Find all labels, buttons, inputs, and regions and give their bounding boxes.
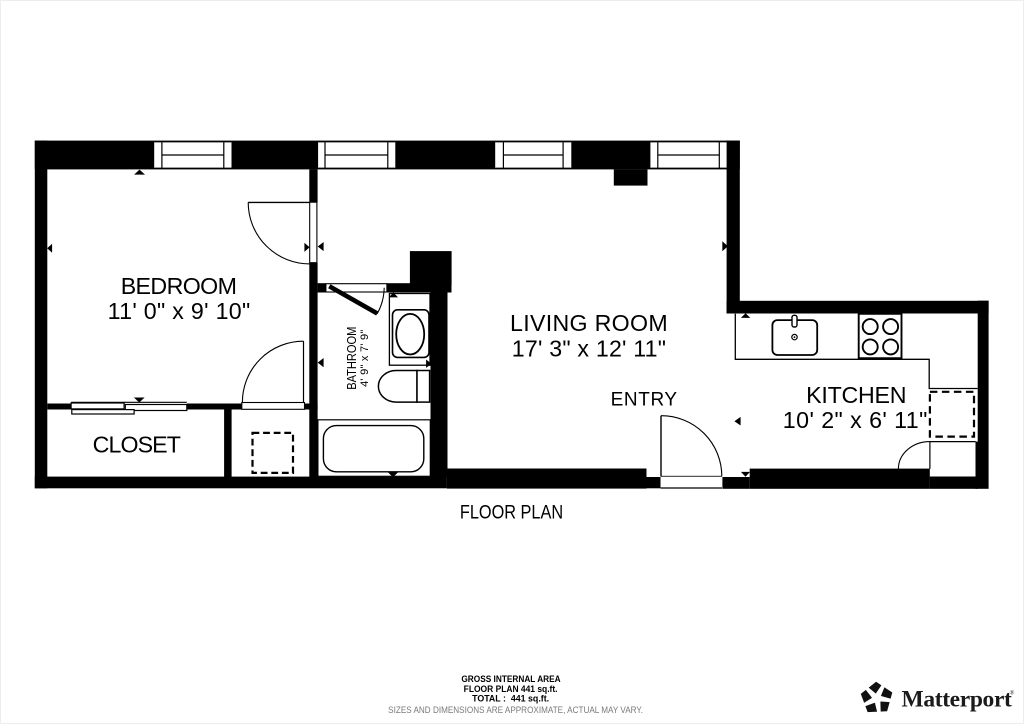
svg-text:10' 2" x 6' 11": 10' 2" x 6' 11" [783,407,928,433]
svg-text:CLOSET: CLOSET [93,432,181,458]
svg-text:BEDROOM: BEDROOM [121,273,237,299]
svg-text:KITCHEN: KITCHEN [806,382,906,408]
svg-text:FLOOR PLAN: FLOOR PLAN [460,501,563,523]
svg-text:SIZES AND DIMENSIONS ARE APPRO: SIZES AND DIMENSIONS ARE APPROXIMATE, AC… [388,704,643,715]
svg-text:4' 9" x 7' 9": 4' 9" x 7' 9" [359,329,371,386]
svg-text:TOTAL : 441 sq.ft.: TOTAL : 441 sq.ft. [472,693,549,703]
svg-text:Matterport: Matterport [902,687,1013,713]
svg-text:LIVING ROOM: LIVING ROOM [510,310,668,336]
svg-text:®: ® [1010,690,1015,697]
svg-text:GROSS INTERNAL AREA: GROSS INTERNAL AREA [461,673,561,684]
svg-text:11' 0" x 9' 10": 11' 0" x 9' 10" [108,298,251,324]
svg-text:17' 3" x 12' 11": 17' 3" x 12' 11" [512,336,666,362]
svg-text:ENTRY: ENTRY [611,390,678,411]
svg-text:BATHROOM: BATHROOM [344,327,359,390]
